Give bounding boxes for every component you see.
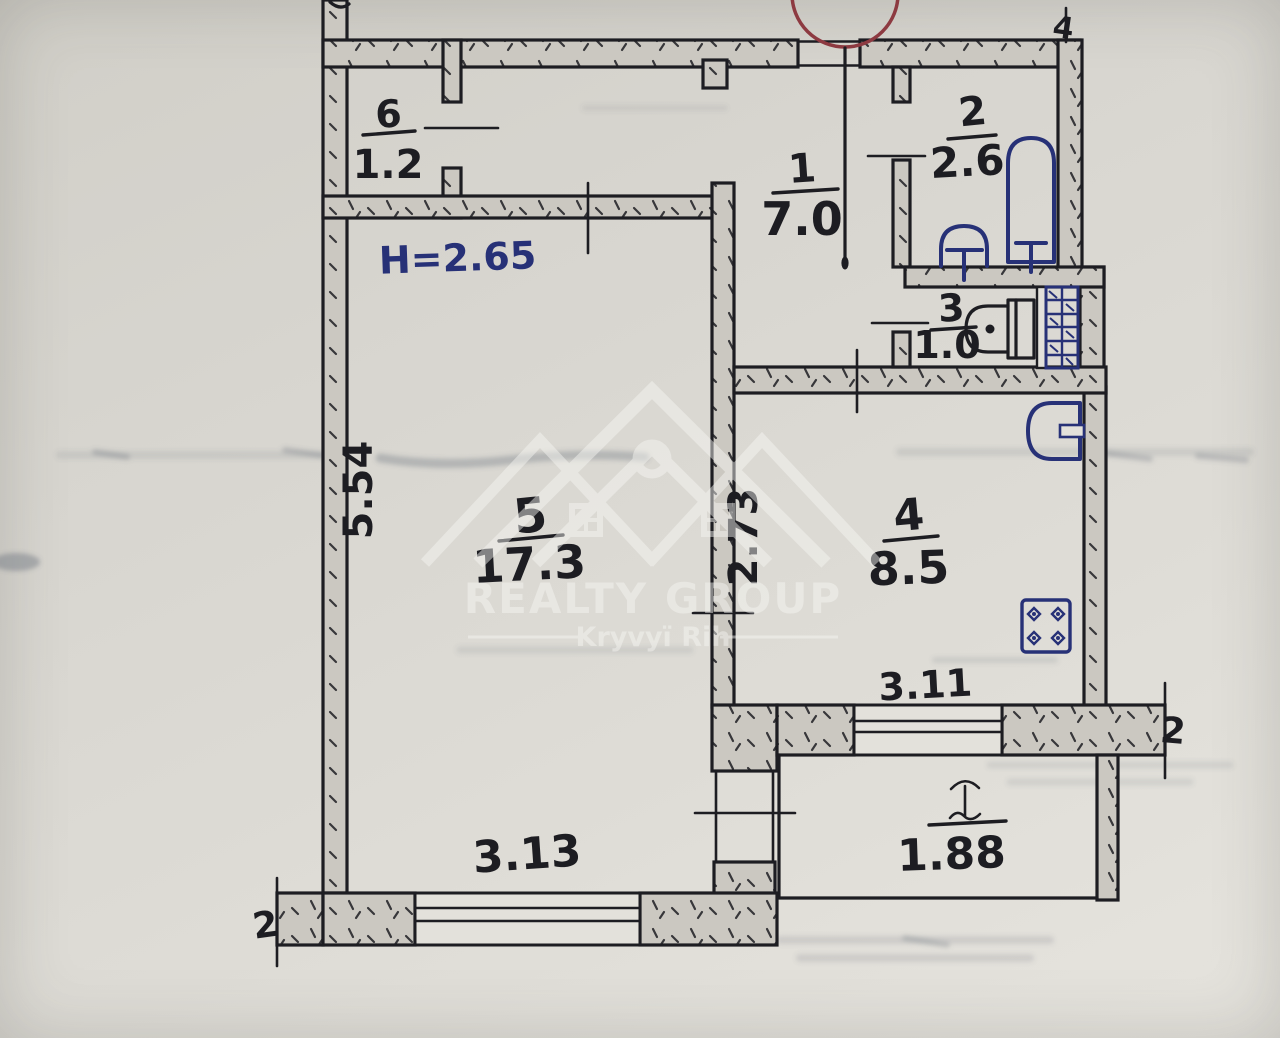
kitchen-window [854,705,1002,755]
wc-area: 1.0 [913,323,980,367]
wall-top-right-segment [860,40,1080,67]
kitchen-number: 4 [891,489,926,542]
hallway-number: 1 [787,145,818,193]
hallway-area: 7.0 [761,192,843,246]
wall-bath-bottom [905,267,1104,287]
wall-bath-left-lower [893,332,910,367]
entrance-axis-dot [841,257,848,270]
watermark-subtitle: Kryvyï Rih [576,622,731,653]
wall-living-top [323,196,713,218]
watermark-title: REALTY GROUP [464,574,842,623]
bathroom-area: 2.6 [929,135,1006,188]
wall-kitchen-bottom-right [1002,705,1165,755]
wall-top-notch [703,60,727,88]
wall-kitchen-bottom-mid [777,705,854,755]
kitchen-area: 8.5 [867,540,950,597]
balcony-door-jambs [716,771,773,862]
wall-bath-left-upper [893,67,910,102]
dim-kitchen-window: 3.11 [877,661,973,710]
vent-shaft-icon [1037,287,1078,368]
wall-hall-south [734,367,1106,393]
wall-balcony-right [1097,755,1118,900]
ceiling-height-label: Н=2.65 [378,233,537,282]
balcony-exit-icon [929,781,1006,825]
wall-living-bottom-extension [277,893,323,945]
living-room-window [415,893,640,945]
wall-right-upper [1058,40,1082,280]
bathroom-number: 2 [956,88,988,137]
axis-mark-right: 2 [1159,710,1188,753]
wall-right-kitchen [1084,387,1106,707]
floorplan-svg: 6 1.2 1 7.0 2 2.6 3 1.0 4 8.5 5 17.3 1.8… [0,0,1280,1038]
wall-bath-left-mid [893,160,910,267]
wall-vestibule-partition-upper [443,40,461,102]
floorplan-photo: 6 1.2 1 7.0 2 2.6 3 1.0 4 8.5 5 17.3 1.8… [0,0,1280,1038]
dimension-labels: 5.54 2.73 3.11 3.13 [336,441,973,884]
vestibule-number: 6 [375,92,403,137]
watermark-logo-icon [425,390,877,563]
watermark: REALTY GROUP Kryvyï Rih [425,390,877,653]
balcony-area: 1.88 [896,827,1006,882]
wall-balcony-door-lower [714,862,775,895]
wall-living-bottom-right [640,893,777,945]
wall-kitchen-bottom-left [712,705,777,771]
stove-icon [1022,600,1070,652]
bathtub-icon [1008,138,1054,272]
dim-living-depth: 5.54 [336,441,382,540]
dim-living-window: 3.13 [471,825,583,883]
wall-living-bottom-left [323,893,415,945]
vestibule-area: 1.2 [353,142,424,188]
